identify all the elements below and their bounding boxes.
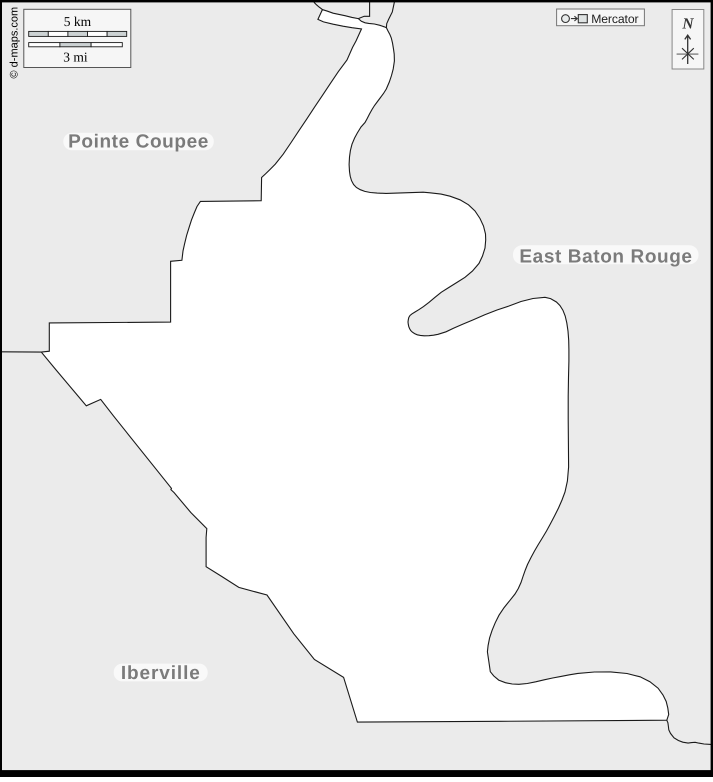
svg-text:Mercator: Mercator (591, 12, 638, 26)
svg-text:3 mi: 3 mi (63, 49, 88, 64)
svg-text:5 km: 5 km (64, 14, 92, 29)
svg-text:East Baton Rouge: East Baton Rouge (519, 246, 692, 267)
svg-text:Iberville: Iberville (121, 663, 201, 684)
svg-text:© d-maps.com: © d-maps.com (9, 7, 21, 79)
svg-text:N: N (681, 16, 694, 33)
svg-text:Pointe Coupee: Pointe Coupee (68, 132, 209, 153)
